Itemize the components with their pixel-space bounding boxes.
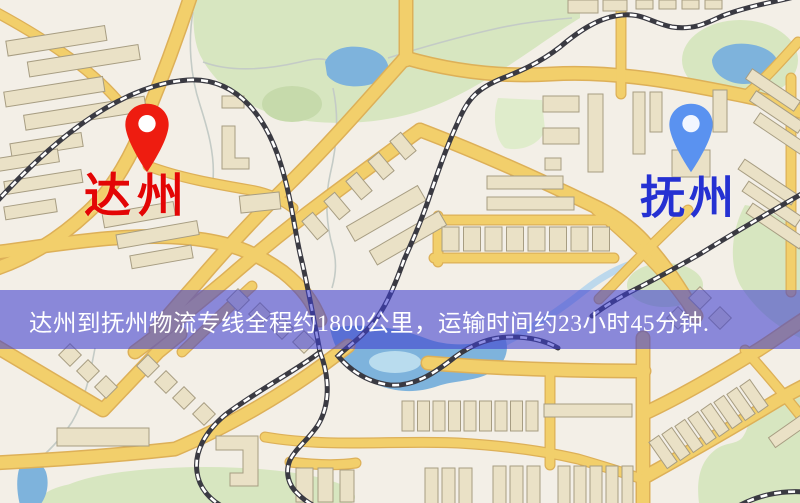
map-background: [0, 0, 800, 503]
route-info-banner: 达州到抚州物流专线全程约1800公里，运输时间约23小时45分钟.: [0, 290, 800, 349]
logistics-route-map: 达州 抚州 达州到抚州物流专线全程约1800公里，运输时间约23小时45分钟.: [0, 0, 800, 503]
blue-map-pin-icon: [665, 101, 717, 174]
destination-pin[interactable]: [665, 101, 717, 174]
route-info-text: 达州到抚州物流专线全程约1800公里，运输时间约23小时45分钟.: [29, 304, 709, 338]
origin-pin[interactable]: [121, 101, 173, 174]
origin-city-label: 达州: [84, 174, 190, 221]
red-map-pin-icon: [121, 101, 173, 174]
destination-city-label: 抚州: [640, 176, 738, 221]
